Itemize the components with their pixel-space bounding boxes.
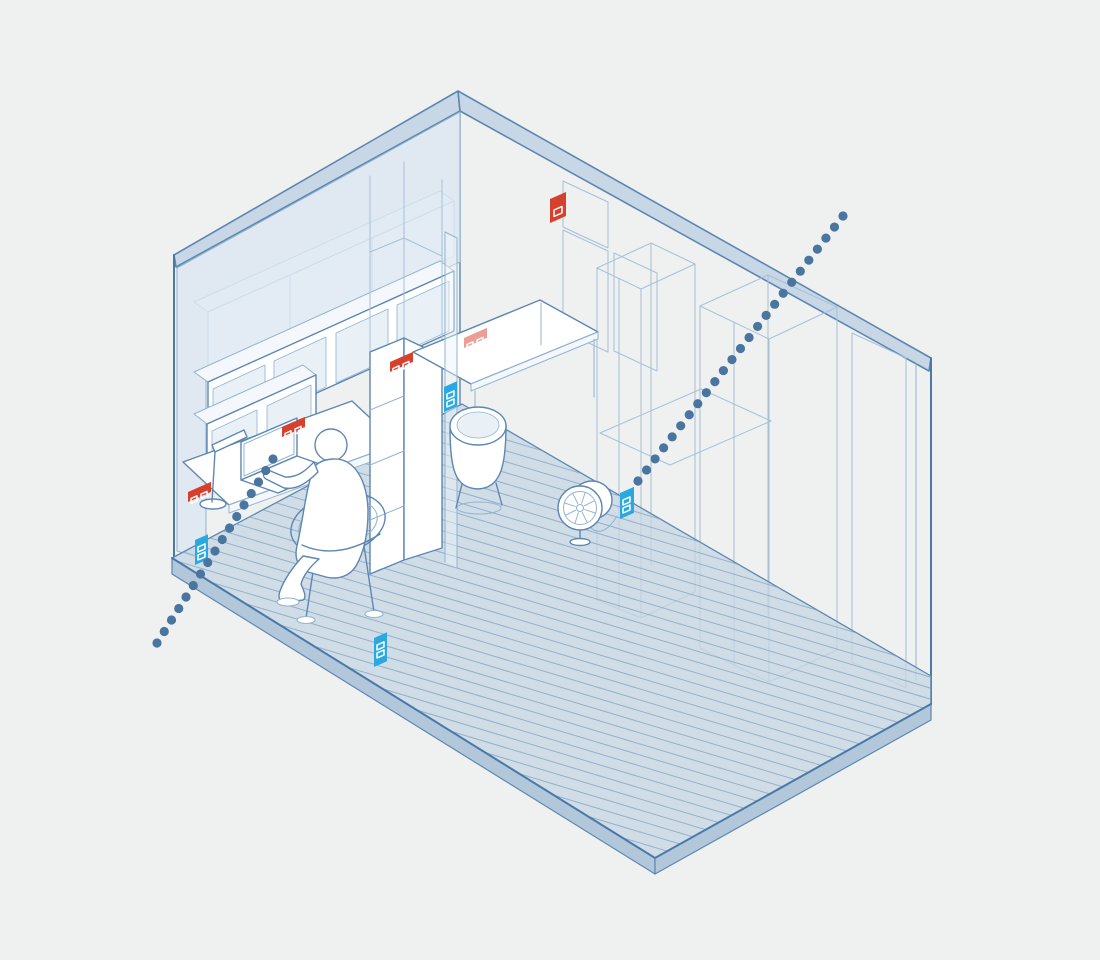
power-dot bbox=[838, 211, 847, 220]
power-dot bbox=[702, 388, 711, 397]
person-head bbox=[315, 429, 347, 461]
isometric-room-diagram bbox=[0, 0, 1100, 960]
power-dot bbox=[685, 410, 694, 419]
power-dot bbox=[247, 489, 256, 498]
power-dot bbox=[203, 558, 212, 567]
power-dot bbox=[830, 222, 839, 231]
power-dot bbox=[710, 377, 719, 386]
power-dot bbox=[821, 233, 830, 242]
power-dot bbox=[239, 500, 248, 509]
power-dot bbox=[796, 267, 805, 276]
power-dot bbox=[727, 355, 736, 364]
power-dot bbox=[813, 245, 822, 254]
power-dot bbox=[160, 627, 169, 636]
power-dot bbox=[736, 344, 745, 353]
fan-foot bbox=[570, 539, 590, 546]
power-dot bbox=[174, 604, 183, 613]
power-dot bbox=[152, 638, 161, 647]
lamp-base bbox=[200, 499, 226, 509]
power-dot bbox=[642, 465, 651, 474]
power-dot bbox=[225, 523, 234, 532]
power-dot bbox=[196, 569, 205, 578]
power-dot bbox=[770, 300, 779, 309]
power-dot bbox=[210, 546, 219, 555]
power-dot bbox=[787, 278, 796, 287]
power-dot bbox=[232, 512, 241, 521]
power-dot bbox=[261, 466, 270, 475]
power-dot bbox=[693, 399, 702, 408]
power-dot bbox=[659, 443, 668, 452]
power-dot bbox=[719, 366, 728, 375]
power-dot bbox=[268, 454, 277, 463]
power-dot bbox=[650, 454, 659, 463]
power-dot bbox=[189, 581, 198, 590]
power-dot bbox=[753, 322, 762, 331]
power-dot bbox=[218, 535, 227, 544]
power-dot bbox=[254, 477, 263, 486]
power-dot bbox=[676, 421, 685, 430]
power-dot bbox=[668, 432, 677, 441]
power-dot bbox=[779, 289, 788, 298]
fan-hub bbox=[577, 505, 584, 512]
outlet-floor bbox=[374, 632, 387, 667]
power-dot bbox=[762, 311, 771, 320]
power-dot bbox=[804, 256, 813, 265]
power-dot bbox=[633, 476, 642, 485]
power-dot bbox=[167, 615, 176, 624]
person-foot bbox=[277, 598, 299, 606]
power-dot bbox=[744, 333, 753, 342]
power-dot bbox=[181, 592, 190, 601]
